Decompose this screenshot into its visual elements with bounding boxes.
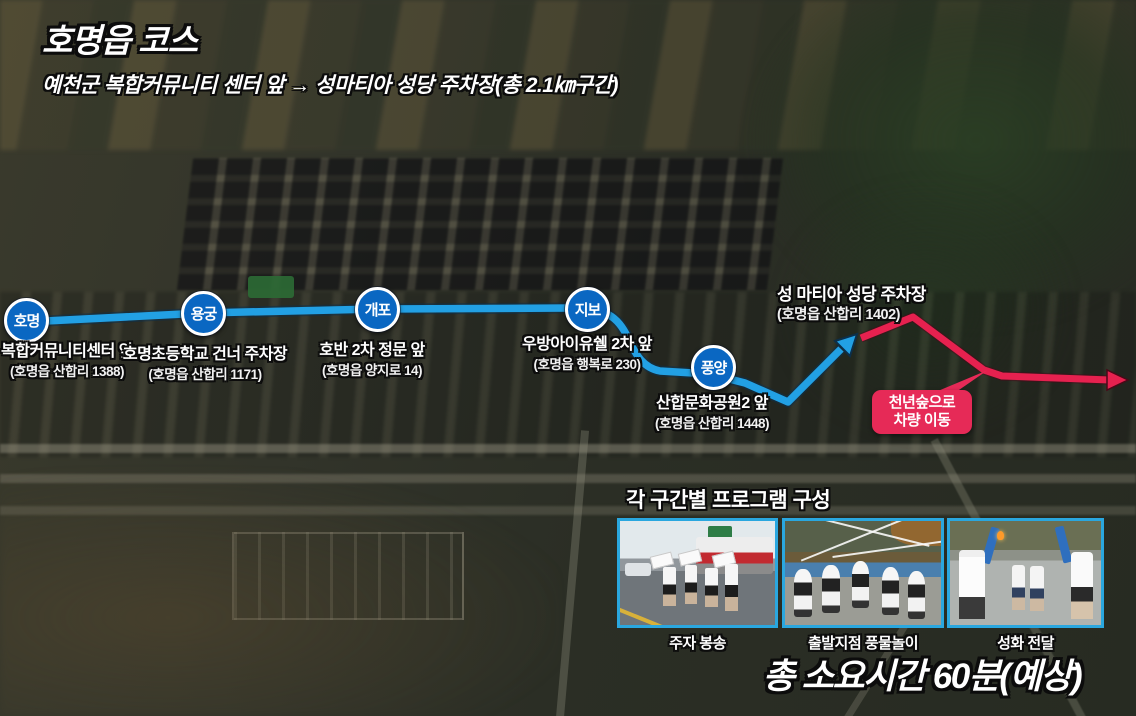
photo-art	[822, 565, 839, 613]
program-photo-torch	[947, 518, 1104, 628]
station-place: 호반 2차 정문 앞	[282, 342, 462, 361]
photo-art	[1012, 565, 1026, 611]
station-label-jibo: 우방아이유쉘 2차 앞 (호명읍 행복로 230)	[487, 336, 687, 373]
map-texture-parking-grid	[232, 532, 464, 620]
callout-line1: 천년숲으로	[874, 394, 970, 412]
station-badge-label: 지보	[575, 299, 601, 320]
map-texture-road	[555, 430, 589, 716]
photo-art	[1054, 526, 1072, 565]
header: 호명읍 코스 예천군 복합커뮤니티 센터 앞 → 성마티아 성당 주차장(총 2…	[42, 14, 618, 99]
photo-art	[685, 565, 697, 605]
program-heading: 각 구간별 프로그램 구성	[626, 484, 830, 514]
destination-label: 성 마티아 성당 주차장 (호명읍 산합리 1402)	[777, 285, 926, 325]
map-texture-hill	[746, 0, 1136, 330]
station-badge-label: 풍양	[701, 357, 727, 378]
station-place: 우방아이유쉘 2차 앞	[487, 336, 687, 355]
photo-art	[794, 569, 811, 617]
station-label-gaepo: 호반 2차 정문 앞 (호명읍 양지로 14)	[282, 342, 462, 379]
program-photo-pungmul	[782, 518, 944, 628]
photo-art	[1030, 566, 1044, 612]
station-badge-label: 용궁	[191, 303, 217, 324]
course-map-canvas: 호명읍 코스 예천군 복합커뮤니티 센터 앞 → 성마티아 성당 주차장(총 2…	[0, 0, 1136, 716]
photo-art	[705, 568, 717, 608]
photo-art	[1071, 552, 1094, 619]
total-time-text: 총 소요시간 60분(예상)	[712, 648, 1132, 699]
station-place: 호명초등학교 건너 주차장	[120, 346, 290, 365]
program-photo-runners	[617, 518, 778, 628]
station-badge-pungyang: 풍양	[691, 345, 736, 390]
map-texture-dirt	[0, 470, 560, 716]
photo-art	[625, 563, 651, 577]
map-texture-roads	[0, 444, 1136, 453]
station-badge-label: 개포	[365, 299, 391, 320]
station-label-pungyang: 산합문화공원2 앞 (호명읍 산합리 1448)	[612, 395, 812, 432]
station-label-yonggung: 호명초등학교 건너 주차장 (호명읍 산합리 1171)	[120, 346, 290, 383]
map-texture-sports-field	[248, 276, 294, 298]
station-address: (호명읍 양지로 14)	[282, 363, 462, 379]
photo-art	[959, 550, 985, 619]
station-badge-jibo: 지보	[565, 287, 610, 332]
station-address: (호명읍 산합리 1448)	[612, 416, 812, 432]
photo-art	[832, 540, 944, 558]
station-badge-label: 호명	[14, 310, 40, 331]
station-address: (호명읍 행복로 230)	[487, 357, 687, 373]
page-title: 호명읍 코스	[42, 14, 618, 62]
station-badge-homyeong: 호명	[4, 298, 49, 343]
station-place: 산합문화공원2 앞	[612, 395, 812, 414]
transfer-callout: 천년숲으로 차량 이동	[872, 390, 972, 434]
callout-line2: 차량 이동	[874, 412, 970, 430]
photo-art	[725, 564, 737, 612]
destination-address: (호명읍 산합리 1402)	[777, 307, 926, 324]
course-subtitle: 예천군 복합커뮤니티 센터 앞 → 성마티아 성당 주차장(총 2.1㎞구간)	[42, 69, 618, 99]
photo-art	[882, 567, 899, 615]
photo-art	[617, 603, 677, 628]
map-texture-apartments	[177, 158, 783, 290]
destination-place: 성 마티아 성당 주차장	[777, 285, 926, 305]
photo-art	[852, 561, 869, 609]
station-badge-yonggung: 용궁	[181, 291, 226, 336]
photo-art	[997, 531, 1004, 540]
photo-art	[663, 567, 675, 607]
station-badge-gaepo: 개포	[355, 287, 400, 332]
photo-art	[908, 571, 925, 619]
station-address: (호명읍 산합리 1171)	[120, 367, 290, 383]
